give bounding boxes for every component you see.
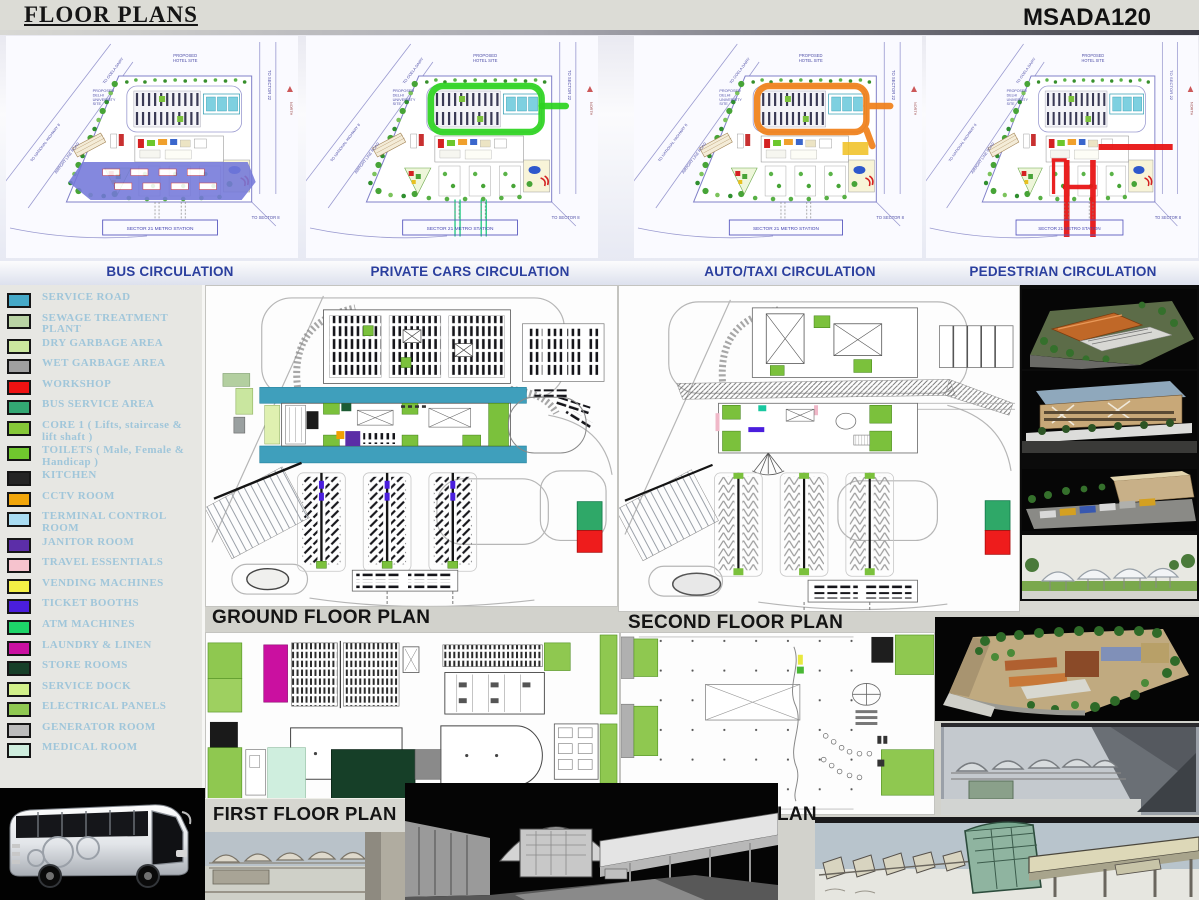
third-floor-plan-label-fragment: LAN xyxy=(777,804,817,826)
legend-item-label: ELECTRICAL PANELS xyxy=(42,701,166,713)
site-plan-auto-taxi-circulation: SECTOR 21 METRO STATION PROPOSEDHOTEL SI… xyxy=(634,36,922,258)
svg-text:PROPOSEDHOTEL SITE: PROPOSEDHOTEL SITE xyxy=(799,53,823,63)
legend-color-swatch xyxy=(7,512,31,527)
legend-item: BUS SERVICE AREA xyxy=(7,399,198,418)
legend-color-swatch xyxy=(7,702,31,717)
render-canopies-small xyxy=(205,832,405,900)
legend-color-swatch xyxy=(7,339,31,354)
legend-item: JANITOR ROOM xyxy=(7,537,198,556)
legend-color-swatch xyxy=(7,682,31,697)
legend-color-swatch xyxy=(7,400,31,415)
legend-color-swatch xyxy=(7,314,31,329)
legend-item-label: STORE ROOMS xyxy=(42,660,128,672)
svg-text:TO SECTOR 8: TO SECTOR 8 xyxy=(552,215,581,220)
bus-photo xyxy=(0,788,205,900)
second-floor-plan-label: SECOND FLOOR PLAN xyxy=(628,612,843,634)
svg-text:NORTH: NORTH xyxy=(913,102,917,116)
site-plan-drawing: SECTOR 21 METRO STATION PROPOSEDHOTEL SI… xyxy=(306,36,598,258)
site-plan-drawing: SECTOR 21 METRO STATION PROPOSEDHOTEL SI… xyxy=(634,36,922,258)
render-concourse-canopies xyxy=(941,723,1199,815)
legend-color-swatch xyxy=(7,538,31,553)
presentation-board: FLOOR PLANS MSADA120 SECTOR 21 METRO STA… xyxy=(0,0,1199,900)
legend-color-swatch xyxy=(7,471,31,486)
legend-item-label: SERVICE ROAD xyxy=(42,292,130,304)
legend-item-label: JANITOR ROOM xyxy=(42,537,134,549)
legend-item-label: VENDING MACHINES xyxy=(42,578,164,590)
render-flyover-sketch xyxy=(815,817,1199,900)
circulation-label-bus: BUS CIRCULATION xyxy=(30,264,310,279)
render-terminal-facade xyxy=(1022,371,1197,453)
legend-item: LAUNDRY & LINEN xyxy=(7,640,198,659)
first-floor-plan-label: FIRST FLOOR PLAN xyxy=(213,803,397,825)
legend-item-label: TICKET BOOTHS xyxy=(42,598,139,610)
render-masterplan-aerial xyxy=(935,617,1199,721)
page-title: FLOOR PLANS xyxy=(24,2,198,28)
first-floor-plan-sheet xyxy=(205,632,620,802)
legend-item: SEWAGE TREATMENT PLANT xyxy=(7,313,198,336)
legend-item-label: SERVICE DOCK xyxy=(42,681,131,693)
legend-color-swatch xyxy=(7,421,31,436)
legend-item: TERMINAL CONTROL ROOM xyxy=(7,511,198,534)
circulation-label-pedestrian: PEDESTRIAN CIRCULATION xyxy=(930,264,1196,279)
circulation-label-auto-taxi: AUTO/TAXI CIRCULATION xyxy=(660,264,920,279)
legend-item-label: KITCHEN xyxy=(42,470,97,482)
svg-text:SECTOR 21 METRO STATION: SECTOR 21 METRO STATION xyxy=(1038,226,1100,231)
legend-item: SERVICE ROAD xyxy=(7,292,198,311)
second-floor-plan-drawing xyxy=(619,286,1019,611)
legend-item-label: TOILETS ( Male, Female & Handicap ) xyxy=(42,445,194,468)
legend-item: VENDING MACHINES xyxy=(7,578,198,597)
legend-item: CCTV ROOM xyxy=(7,491,198,510)
site-plan-bus-circulation: SECTOR 21 METRO STATION PROPOSEDHOTEL SI… xyxy=(6,36,298,258)
circulation-labels-row: BUS CIRCULATION PRIVATE CARS CIRCULATION… xyxy=(0,261,1199,285)
svg-text:SECTOR 21 METRO STATION: SECTOR 21 METRO STATION xyxy=(753,226,820,232)
legend-color-swatch xyxy=(7,620,31,635)
legend-item-label: SEWAGE TREATMENT PLANT xyxy=(42,313,194,336)
render-aerial-terminal xyxy=(1022,289,1197,369)
render-underpass-bw xyxy=(405,783,778,900)
svg-text:PROPOSEDHOTEL SITE: PROPOSEDHOTEL SITE xyxy=(1082,53,1105,63)
legend-item: TOILETS ( Male, Female & Handicap ) xyxy=(7,445,198,468)
svg-text:TO SECTOR 22: TO SECTOR 22 xyxy=(891,70,896,101)
legend-item: ELECTRICAL PANELS xyxy=(7,701,198,720)
render-column xyxy=(1020,285,1199,615)
site-plan-svg: SECTOR 21 METRO STATION PROPOSEDHOTEL SI… xyxy=(306,36,598,258)
legend-color-swatch xyxy=(7,661,31,676)
legend-item: TRAVEL ESSENTIALS xyxy=(7,557,198,576)
svg-text:PROPOSEDHOTEL SITE: PROPOSEDHOTEL SITE xyxy=(173,53,198,63)
legend-color-swatch xyxy=(7,743,31,758)
render-platform-canopies xyxy=(1022,535,1197,599)
legend-color-swatch xyxy=(7,293,31,308)
legend-item-label: TERMINAL CONTROL ROOM xyxy=(42,511,194,534)
legend-color-swatch xyxy=(7,380,31,395)
header: FLOOR PLANS MSADA120 xyxy=(0,0,1199,32)
legend-item: DRY GARBAGE AREA xyxy=(7,338,198,357)
site-plan-private-cars-circulation: SECTOR 21 METRO STATION PROPOSEDHOTEL SI… xyxy=(306,36,598,258)
legend-item: ATM MACHINES xyxy=(7,619,198,638)
legend-item-label: TRAVEL ESSENTIALS xyxy=(42,557,163,569)
legend-color-swatch xyxy=(7,641,31,656)
legend-item-label: MEDICAL ROOM xyxy=(42,742,138,754)
legend-item: SERVICE DOCK xyxy=(7,681,198,700)
legend-item-label: CORE 1 ( Lifts, staircase & lift shaft ) xyxy=(42,420,194,443)
legend-item-label: WET GARBAGE AREA xyxy=(42,358,166,370)
legend-item-label: DRY GARBAGE AREA xyxy=(42,338,163,350)
legend-panel: SERVICE ROAD SEWAGE TREATMENT PLANT DRY … xyxy=(0,285,205,788)
svg-text:TO SECTOR 8: TO SECTOR 8 xyxy=(876,215,904,220)
project-code: MSADA120 xyxy=(1023,4,1151,32)
legend-color-swatch xyxy=(7,446,31,461)
legend-item-label: BUS SERVICE AREA xyxy=(42,399,154,411)
legend-item: WORKSHOP xyxy=(7,379,198,398)
legend-item-label: CCTV ROOM xyxy=(42,491,115,503)
ground-floor-plan-label: GROUND FLOOR PLAN xyxy=(212,607,430,629)
svg-text:TO SECTOR 22: TO SECTOR 22 xyxy=(1169,70,1174,101)
legend-item-label: LAUNDRY & LINEN xyxy=(42,640,152,652)
svg-text:TO SECTOR 22: TO SECTOR 22 xyxy=(567,70,572,101)
legend-item-label: ATM MACHINES xyxy=(42,619,135,631)
site-plan-svg: SECTOR 21 METRO STATION PROPOSEDHOTEL SI… xyxy=(926,36,1198,258)
legend-color-swatch xyxy=(7,599,31,614)
legend-item: WET GARBAGE AREA xyxy=(7,358,198,377)
second-floor-plan-sheet xyxy=(618,285,1020,612)
site-plan-drawing: SECTOR 21 METRO STATION PROPOSEDHOTEL SI… xyxy=(6,36,298,258)
svg-text:TO SECTOR 22: TO SECTOR 22 xyxy=(267,70,272,101)
site-plan-svg: SECTOR 21 METRO STATION PROPOSEDHOTEL SI… xyxy=(6,36,298,258)
legend-item-label: GENERATOR ROOM xyxy=(42,722,156,734)
legend-item: GENERATOR ROOM xyxy=(7,722,198,741)
legend-item-label: WORKSHOP xyxy=(42,379,111,391)
legend-color-swatch xyxy=(7,492,31,507)
legend-item: TICKET BOOTHS xyxy=(7,598,198,617)
svg-text:NORTH: NORTH xyxy=(589,102,593,116)
legend-color-swatch xyxy=(7,723,31,738)
svg-text:SECTOR 21 METRO STATION: SECTOR 21 METRO STATION xyxy=(127,226,194,232)
legend-item: STORE ROOMS xyxy=(7,660,198,679)
ground-floor-plan-drawing xyxy=(206,286,617,606)
circulation-label-cars: PRIVATE CARS CIRCULATION xyxy=(330,264,610,279)
legend-color-swatch xyxy=(7,579,31,594)
site-plan-drawing: SECTOR 21 METRO STATION PROPOSEDHOTEL SI… xyxy=(926,36,1198,258)
legend-color-swatch xyxy=(7,359,31,374)
svg-text:PROPOSEDHOTEL SITE: PROPOSEDHOTEL SITE xyxy=(473,53,498,63)
render-parking-aerial xyxy=(1022,469,1197,531)
legend-item: CORE 1 ( Lifts, staircase & lift shaft ) xyxy=(7,420,198,443)
site-plan-svg: SECTOR 21 METRO STATION PROPOSEDHOTEL SI… xyxy=(634,36,922,258)
svg-text:TO SECTOR 8: TO SECTOR 8 xyxy=(252,215,281,220)
legend-color-swatch xyxy=(7,558,31,573)
svg-text:TO SECTOR 8: TO SECTOR 8 xyxy=(1155,215,1182,220)
svg-text:NORTH: NORTH xyxy=(1190,102,1194,116)
svg-text:SECTOR 21 METRO STATION: SECTOR 21 METRO STATION xyxy=(427,226,494,232)
ground-floor-plan-sheet xyxy=(205,285,618,607)
site-plan-pedestrian-circulation: SECTOR 21 METRO STATION PROPOSEDHOTEL SI… xyxy=(926,36,1198,258)
svg-text:NORTH: NORTH xyxy=(289,102,293,116)
first-floor-plan-drawing xyxy=(206,633,619,801)
legend-item: MEDICAL ROOM xyxy=(7,742,198,761)
legend-item: KITCHEN xyxy=(7,470,198,489)
